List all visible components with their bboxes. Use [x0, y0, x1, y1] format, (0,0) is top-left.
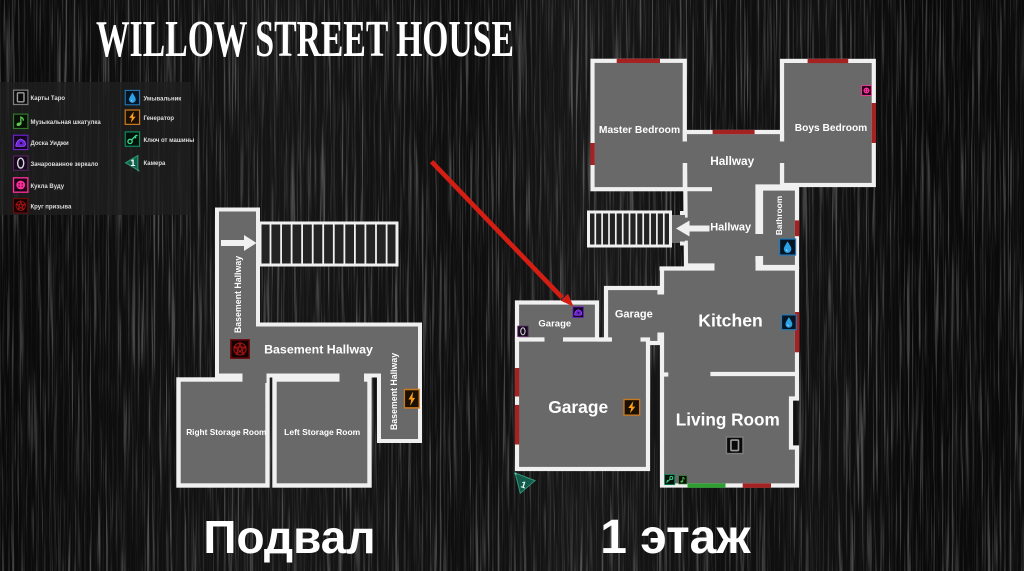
svg-text:Карты Таро: Карты Таро — [31, 96, 66, 102]
svg-text:Right Storage Room: Right Storage Room — [186, 427, 266, 437]
svg-text:Garage: Garage — [538, 319, 571, 330]
svg-text:Hallway: Hallway — [710, 154, 754, 168]
svg-text:Доска Уиджи: Доска Уиджи — [31, 141, 70, 147]
svg-text:Круг призыва: Круг призыва — [31, 205, 72, 211]
svg-text:Living Room: Living Room — [676, 410, 780, 430]
svg-text:Зачарованное зеркало: Зачарованное зеркало — [31, 162, 99, 168]
svg-text:Boys Bedroom: Boys Bedroom — [795, 123, 867, 134]
svg-text:Bathroom: Bathroom — [774, 196, 784, 235]
svg-text:Генератор: Генератор — [144, 116, 175, 122]
svg-text:Master Bedroom: Master Bedroom — [599, 125, 680, 136]
svg-text:Hallway: Hallway — [710, 222, 752, 234]
svg-text:Garage: Garage — [548, 397, 608, 417]
svg-text:Камера: Камера — [144, 161, 167, 167]
svg-text:Музыкальная шкатулка: Музыкальная шкатулка — [31, 120, 102, 126]
svg-text:Умывальник: Умывальник — [144, 97, 182, 103]
svg-text:Кукла Вуду: Кукла Вуду — [31, 184, 65, 190]
svg-text:Basement Hallway: Basement Hallway — [389, 353, 399, 430]
svg-text:Kitchen: Kitchen — [698, 311, 763, 331]
svg-text:Ключ от машины: Ключ от машины — [144, 138, 195, 144]
svg-text:WILLOW STREET HOUSE: WILLOW STREET HOUSE — [96, 11, 514, 68]
svg-text:Basement Hallway: Basement Hallway — [264, 343, 373, 357]
svg-text:Подвал: Подвал — [203, 511, 375, 563]
svg-text:Basement Hallway: Basement Hallway — [233, 256, 243, 333]
svg-text:1 этаж: 1 этаж — [600, 511, 751, 564]
svg-text:Garage: Garage — [615, 309, 653, 321]
svg-text:Left Storage Room: Left Storage Room — [284, 427, 360, 437]
